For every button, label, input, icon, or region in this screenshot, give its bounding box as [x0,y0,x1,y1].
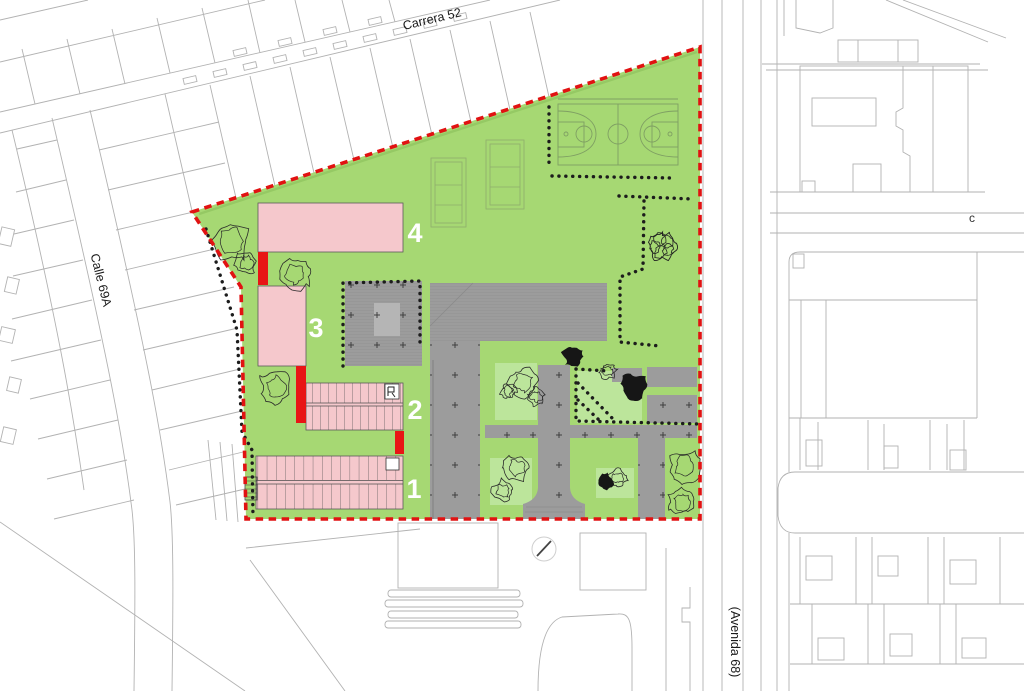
street-label-carrera-52: Carrera 52 [401,5,462,33]
small-deck [647,367,697,387]
street-label-partial-c: c [969,211,975,225]
building-2-label: 2 [407,395,422,425]
building-1 [245,456,403,509]
building-4 [258,203,403,252]
building-2 [306,383,403,430]
site-plan-page: 4 3 2 1 Carrera 52 Calle 69A (Avenida 68… [0,0,1024,691]
project-site: 4 3 2 1 [192,47,701,519]
red-link-4 [258,252,268,285]
red-link-2 [395,431,404,454]
red-link-3 [296,366,306,423]
building-3 [258,286,306,366]
planting-zone [490,458,532,505]
site-plan-canvas: 4 3 2 1 Carrera 52 Calle 69A (Avenida 68… [0,0,1024,691]
left-parcel-buildings [0,227,21,445]
right-blocks [762,0,1024,691]
avenida-68-lanes [703,0,777,691]
street-label-avenida-68: (Avenida 68) [728,607,742,678]
building-3-label: 3 [308,313,323,343]
building-1-label: 1 [406,474,421,504]
bottom-context [385,523,690,691]
building-4-label: 4 [407,218,422,248]
